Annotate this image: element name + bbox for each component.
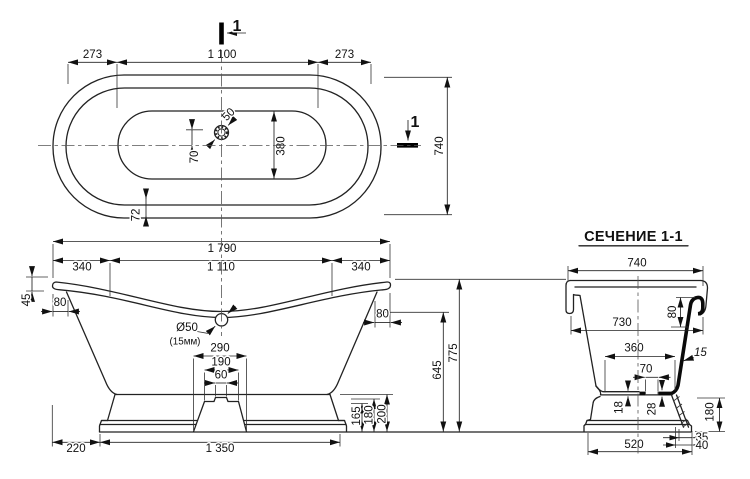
dim-label-645: 645 xyxy=(432,360,444,379)
section-title: СЕЧЕНИЕ 1-1 xyxy=(584,229,683,245)
dim-label-340-right: 340 xyxy=(351,262,370,274)
tub-wall-right xyxy=(327,292,377,395)
section-view: СЕЧЕНИЕ 1-1 xyxy=(566,229,725,455)
dim-label-290: 290 xyxy=(210,343,229,355)
dim-label-80-section: 80 xyxy=(667,306,679,319)
top-view-dimension-lines xyxy=(68,62,447,225)
dim-label-220: 220 xyxy=(66,443,85,455)
dim-label-165: 165 xyxy=(351,406,363,425)
drawing-canvas: 273 1 100 273 740 380 70 50 72 1 1 xyxy=(0,0,750,479)
tub-rim-inner-edge xyxy=(66,88,368,205)
top-view-extension-lines xyxy=(68,64,452,215)
dim-label-340-left: 340 xyxy=(72,262,91,274)
dim-label-70-plan: 70 xyxy=(189,151,201,164)
dim-label-28: 28 xyxy=(647,403,659,416)
dim-label-740-section: 740 xyxy=(627,258,646,270)
dim-label-520: 520 xyxy=(624,439,643,451)
dim-label-180-section: 180 xyxy=(705,402,717,421)
dim-label-200: 200 xyxy=(377,404,389,423)
tub-basin xyxy=(118,111,326,179)
dim-label-1790: 1 790 xyxy=(208,243,237,255)
cut-label-right: 1 xyxy=(411,114,420,131)
dim-label-740-plan: 740 xyxy=(434,136,446,155)
dim-label-50-drain: 50 xyxy=(220,106,238,124)
drain-note-label: (15мм) xyxy=(170,337,201,348)
dim-label-273-right: 273 xyxy=(335,49,354,61)
dim-label-180-side: 180 xyxy=(364,405,376,424)
drain-diameter-label: Ø50 xyxy=(176,322,198,334)
dim-label-380: 380 xyxy=(276,136,288,155)
dim-label-70-section: 70 xyxy=(640,364,653,376)
section-cut-marks xyxy=(222,23,419,146)
dim-label-273-left: 273 xyxy=(83,49,102,61)
top-view: 273 1 100 273 740 380 70 50 72 1 1 xyxy=(53,18,452,226)
dim-label-40: 40 xyxy=(696,440,709,452)
dim-label-72: 72 xyxy=(131,209,143,222)
dim-label-775: 775 xyxy=(448,343,460,362)
dim-label-45: 45 xyxy=(21,294,33,307)
side-view-extension-lines xyxy=(26,244,566,447)
tub-outer-rim xyxy=(53,75,381,218)
dim-label-730: 730 xyxy=(612,317,631,329)
dim-label-1350: 1 350 xyxy=(206,443,235,455)
side-view-dimension-lines xyxy=(32,242,459,443)
pedestal-base xyxy=(100,395,347,432)
pedestal-cutout xyxy=(194,398,247,432)
dim-label-15: 15 xyxy=(694,347,707,359)
dim-label-1110: 1 110 xyxy=(207,262,235,274)
bathtub-technical-drawing: 273 1 100 273 740 380 70 50 72 1 1 xyxy=(0,0,750,479)
section-skirt-hatched xyxy=(672,395,690,427)
side-view: 1 790 340 1 110 340 45 80 80 Ø50 (15мм) … xyxy=(21,242,692,456)
cut-label-top: 1 xyxy=(233,18,242,35)
centerlines xyxy=(38,50,638,457)
dim-label-1100: 1 100 xyxy=(208,49,237,61)
dim-label-80-left: 80 xyxy=(54,297,67,309)
dim-label-190: 190 xyxy=(211,357,230,369)
dim-label-60: 60 xyxy=(215,370,228,382)
dim-label-360: 360 xyxy=(624,343,643,355)
dim-label-80-right: 80 xyxy=(376,309,389,321)
tub-wall-left xyxy=(67,292,118,395)
dim-label-18: 18 xyxy=(614,401,626,414)
